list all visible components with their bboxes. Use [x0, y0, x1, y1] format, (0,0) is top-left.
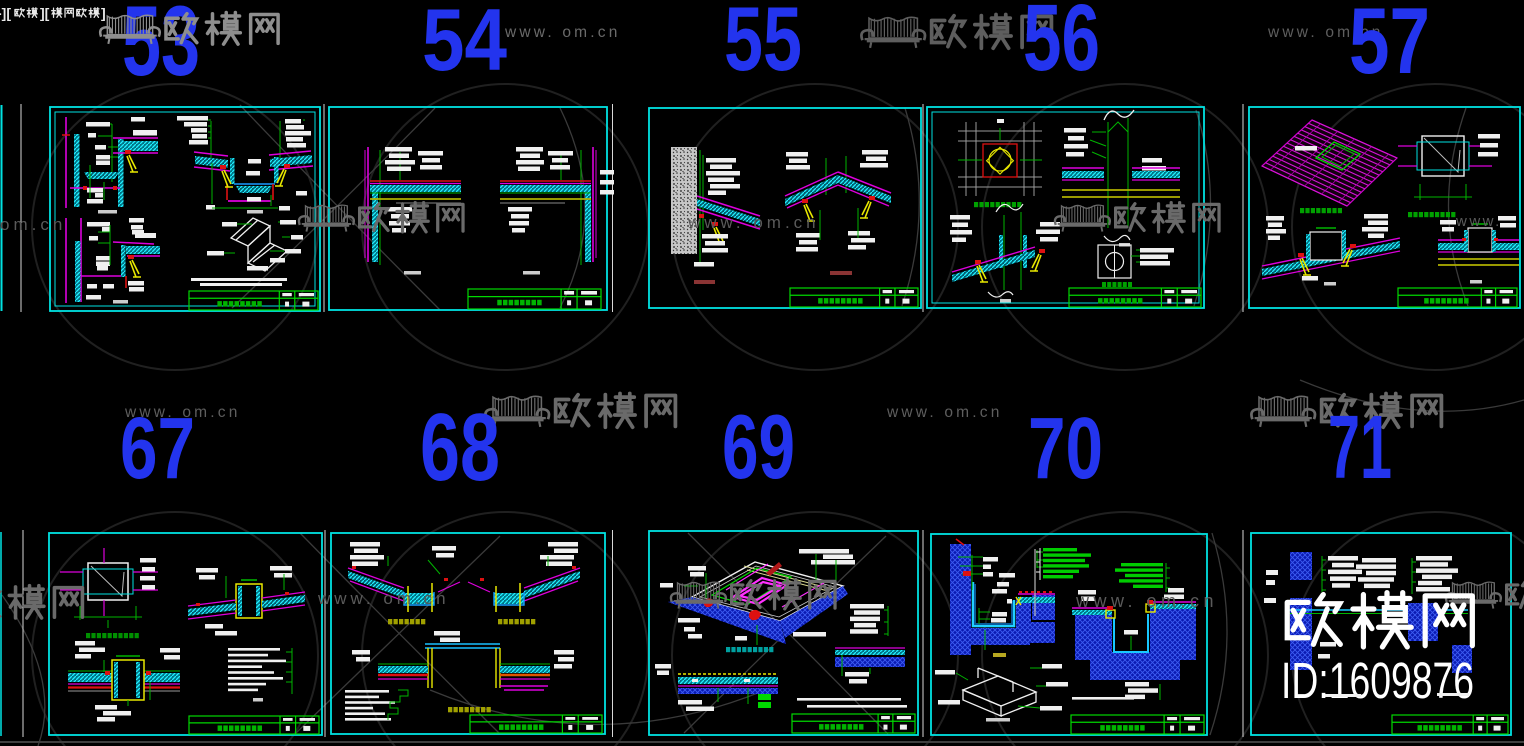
svg-text:54: 54 [422, 0, 507, 89]
svg-text:www. om.cn: www. om.cn [687, 213, 820, 232]
svg-text:55: 55 [724, 0, 802, 90]
svg-text:]: ] [101, 5, 106, 21]
svg-text:www. om.cn: www. om.cn [317, 589, 450, 608]
svg-text:-][: -][ [0, 5, 11, 21]
svg-text:57: 57 [1349, 0, 1430, 93]
svg-text:www. om.cn: www. om.cn [886, 404, 1003, 421]
svg-text:om.cn: om.cn [0, 215, 66, 234]
svg-text:][: ][ [40, 5, 50, 21]
svg-text:www.: www. [1455, 213, 1502, 230]
svg-text:68: 68 [420, 394, 500, 501]
svg-text:56: 56 [1023, 0, 1100, 91]
svg-text:www. om.cn: www. om.cn [1075, 591, 1218, 611]
svg-text:71: 71 [1328, 398, 1392, 498]
svg-text:ID:1609876: ID:1609876 [1281, 652, 1474, 709]
svg-text:67: 67 [120, 400, 195, 497]
svg-text:69: 69 [722, 397, 795, 498]
svg-text:www. om.cn: www. om.cn [504, 24, 621, 41]
svg-text:70: 70 [1028, 400, 1103, 497]
